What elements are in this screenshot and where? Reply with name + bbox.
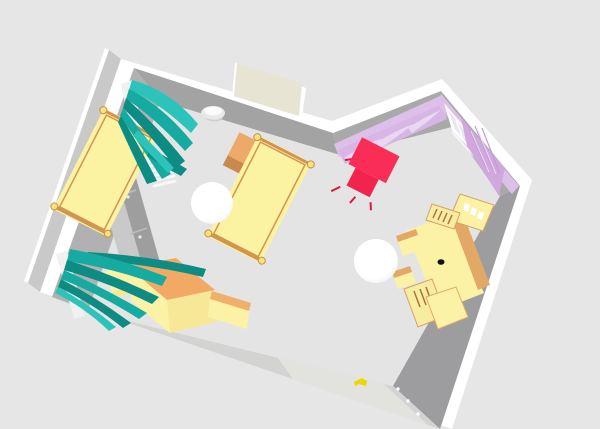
- white-sphere-left[interactable]: [191, 182, 233, 224]
- white-sphere-right[interactable]: [354, 239, 398, 283]
- door-hinge: [406, 399, 409, 402]
- wall-lamp-highlight: [204, 107, 222, 116]
- door-hinge: [416, 412, 419, 415]
- room-3d-view: [0, 0, 600, 429]
- door-hinge: [396, 387, 399, 390]
- wardrobe-knob: [138, 235, 141, 238]
- scene-canvas: [0, 0, 600, 429]
- computer-mouse[interactable]: [438, 259, 445, 265]
